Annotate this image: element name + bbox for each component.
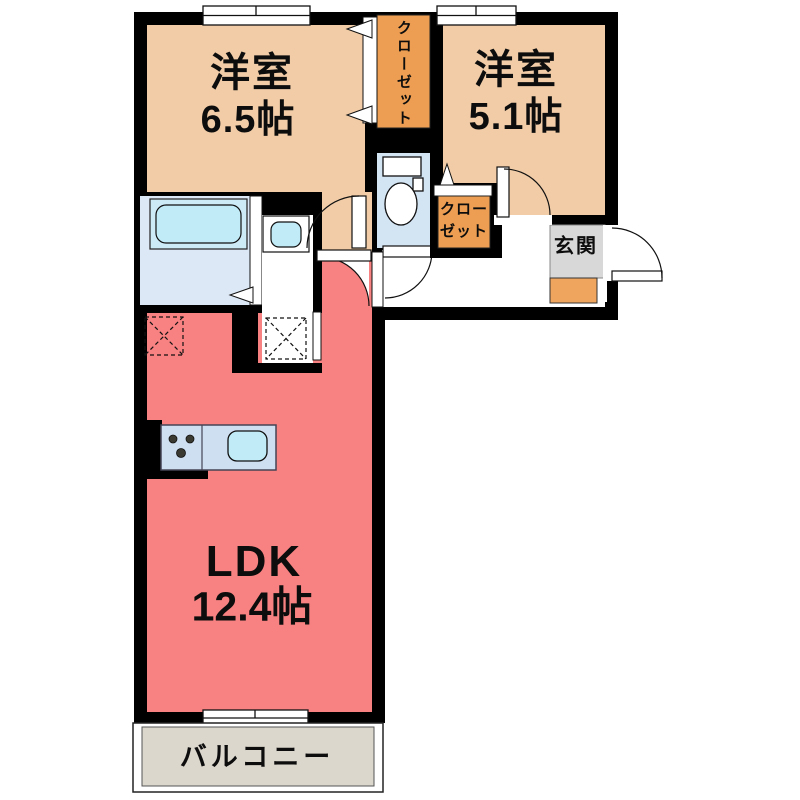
toilet-door-leaf — [383, 246, 432, 257]
entrance-door-frame-mark — [601, 281, 607, 302]
window-room1 — [203, 6, 310, 25]
wall-washroom-bottom — [232, 363, 322, 373]
room2-door-leaf — [497, 167, 509, 217]
room2-size-label: 5.1帖 — [469, 98, 564, 138]
closet-2-door — [434, 185, 492, 196]
wall-kitchen-stub — [134, 420, 162, 468]
hall-ldk-doorway — [372, 252, 383, 307]
kitchen-sink-icon — [228, 431, 267, 461]
window-room2 — [437, 6, 516, 25]
closet-2-label-1: クロー — [440, 202, 488, 218]
washbasin-icon — [271, 222, 301, 247]
bathtub-inner — [156, 205, 241, 243]
room1-name-label: 洋室 — [210, 52, 294, 94]
floor-plan: 洋室 6.5帖 洋室 5.1帖 クローゼット クロー ゼット 玄関 LDK 12… — [0, 0, 800, 800]
washroom-sliding-door — [313, 312, 321, 360]
room1-door-leaf — [352, 196, 366, 248]
entrance-label: 玄関 — [554, 237, 598, 258]
entrance-step — [550, 278, 597, 303]
ldk-door-leaf — [317, 250, 371, 261]
closet-2-label-2: ゼット — [440, 224, 488, 240]
room1-size-label: 6.5帖 — [201, 101, 296, 141]
ldk-size-label: 12.4帖 — [192, 585, 313, 628]
ldk-name-label: LDK — [206, 539, 302, 585]
closet-1-label: クローゼット — [395, 20, 411, 128]
wall-washroom-left — [232, 305, 258, 363]
entry-door-leaf — [612, 271, 662, 281]
room2-name-label: 洋室 — [474, 49, 558, 91]
balcony-label: バルコニー — [180, 743, 334, 771]
